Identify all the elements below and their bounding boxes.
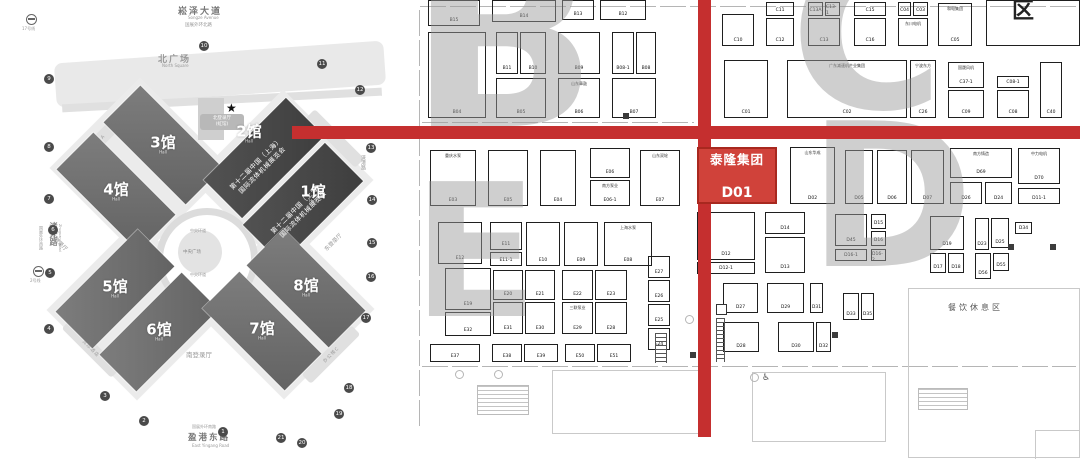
- dimension-line-bzone: [422, 122, 694, 123]
- booth-B10[interactable]: B10: [520, 32, 546, 74]
- booth-C40[interactable]: C40: [1040, 62, 1062, 118]
- pillar-marker: [690, 352, 696, 358]
- booth-B14[interactable]: B14: [492, 0, 556, 22]
- booth-D23[interactable]: D23: [975, 218, 989, 250]
- road-bottom-ring: 国展外环南路: [192, 424, 216, 430]
- booth-D14[interactable]: D14: [765, 212, 805, 234]
- hall-label-6馆: 6馆Hall: [146, 323, 171, 342]
- central-ring-label-top: 中央环道: [190, 228, 206, 234]
- booth-D70[interactable]: 中力电机D70: [1018, 148, 1060, 184]
- booth-E51[interactable]: E51: [597, 344, 631, 362]
- column-circle-1: [455, 370, 464, 379]
- booth-D26[interactable]: D26: [950, 182, 982, 204]
- booth-D33[interactable]: D33: [843, 293, 859, 320]
- booth-C15[interactable]: C15: [854, 2, 886, 16]
- gate-1: 1: [218, 427, 228, 437]
- gate-21: 21: [276, 433, 286, 443]
- central-plaza-label: 中央广场: [183, 249, 201, 255]
- booth-C16[interactable]: C16: [854, 18, 886, 46]
- booth-E09[interactable]: E09: [564, 222, 598, 266]
- booth-D19[interactable]: D19: [930, 216, 964, 250]
- booth-C02[interactable]: 广东减速机产业集团C02: [787, 60, 907, 118]
- booth-B08-1[interactable]: B08-1: [612, 32, 634, 74]
- booth-E26[interactable]: E26: [648, 280, 670, 302]
- booth-B13[interactable]: B13: [562, 0, 594, 20]
- column-circle-2: [494, 370, 503, 379]
- booth-B04[interactable]: B04: [428, 32, 486, 118]
- booth-C08-1[interactable]: C08-1: [997, 76, 1029, 88]
- booth-B12[interactable]: B12: [600, 0, 646, 20]
- booth-D28[interactable]: D28: [723, 322, 759, 352]
- booth-E12[interactable]: E12: [438, 222, 482, 264]
- gate-15: 15: [367, 238, 377, 248]
- booth-B05[interactable]: B05: [496, 78, 546, 118]
- hall-label-8馆: 8馆Hall: [293, 279, 318, 298]
- booth-D32[interactable]: D32: [816, 322, 831, 352]
- gate-10: 10: [199, 41, 209, 51]
- booth-D16[interactable]: D16: [871, 231, 886, 246]
- booth-C01[interactable]: C01: [724, 60, 768, 118]
- hall-label-2馆: 2馆Hall: [236, 125, 261, 144]
- column-circle-3: [685, 315, 694, 324]
- booth-E08[interactable]: 上海水泵E08: [604, 222, 652, 266]
- booth-E25[interactable]: E25: [648, 304, 670, 326]
- gate-4: 4: [44, 324, 54, 334]
- booth-D11-1[interactable]: D11-1: [1018, 188, 1060, 204]
- booth-E06[interactable]: E06: [590, 148, 630, 178]
- booth-D31[interactable]: D31: [810, 283, 823, 313]
- hall-label-3馆: 3馆Hall: [150, 136, 175, 155]
- booth-D15[interactable]: D15: [871, 214, 886, 229]
- booth-C11[interactable]: C11: [766, 2, 794, 16]
- booth-B15[interactable]: B15: [428, 0, 480, 26]
- gate-19: 19: [334, 409, 344, 419]
- booth-D35[interactable]: D35: [861, 293, 874, 320]
- booth-E19[interactable]: E19: [445, 268, 491, 310]
- booth-D05[interactable]: D05: [845, 150, 873, 204]
- pillar-marker: [1050, 244, 1056, 250]
- gate-18: 18: [344, 383, 354, 393]
- booth-D07[interactable]: D07: [911, 150, 944, 204]
- booth-E23[interactable]: E23: [595, 270, 627, 300]
- booth-E07[interactable]: 山东双轮E07: [640, 150, 680, 206]
- booth-D55[interactable]: D55: [993, 253, 1009, 271]
- entrance-outline-3: [1035, 430, 1080, 459]
- booth-D24[interactable]: D24: [985, 182, 1012, 204]
- venue-map-screenshot: 中央广场 中央环道 中央环道 办公楼A 洲际酒店 办公楼C 北登录厅 (虹馆) …: [0, 0, 1080, 459]
- booth-E32[interactable]: E32: [445, 312, 491, 336]
- booth-C09[interactable]: C09: [948, 90, 984, 118]
- booth-C13A[interactable]: C13A: [808, 2, 823, 16]
- left-overview-map: 中央广场 中央环道 中央环道 办公楼A 洲际酒店 办公楼C 北登录厅 (虹馆) …: [0, 0, 415, 459]
- booth-D17[interactable]: D17: [930, 253, 946, 273]
- booth-E03[interactable]: 重庆水泵E03: [430, 150, 476, 206]
- stairs-icon-2: [918, 388, 968, 410]
- stairs-icon-1: [477, 385, 529, 415]
- gate-2: 2: [139, 416, 149, 426]
- you-are-here-star: ★: [226, 102, 237, 114]
- road-left-ring: 国展外环西路: [38, 226, 44, 250]
- gate-13: 13: [366, 143, 376, 153]
- gate-6: 6: [48, 225, 58, 235]
- gate-3: 3: [100, 391, 110, 401]
- booth-E28[interactable]: E28: [595, 302, 627, 334]
- column-circle-4: [750, 373, 759, 382]
- entrance-outline-2: [752, 372, 886, 442]
- booth-E11[interactable]: E11: [490, 222, 522, 250]
- gate-14: 14: [367, 195, 377, 205]
- south-entrance-label: 南登录厅: [186, 349, 212, 359]
- booth-C13-1[interactable]: C13-1: [825, 2, 840, 16]
- booth-B11[interactable]: B11: [496, 32, 518, 74]
- gate-7: 7: [44, 194, 54, 204]
- booth-D06[interactable]: D06: [877, 150, 907, 204]
- booth-E11-1[interactable]: E11-1: [490, 252, 522, 266]
- booth-D02[interactable]: 山东华成D02: [790, 147, 835, 204]
- gate-20: 20: [297, 438, 307, 448]
- booth-D29[interactable]: D29: [767, 283, 804, 313]
- booth-E39[interactable]: E39: [524, 344, 558, 362]
- booth-E38[interactable]: E38: [492, 344, 522, 362]
- booth-E10[interactable]: E10: [526, 222, 560, 266]
- dimension-line-left: [419, 10, 420, 430]
- gate-9: 9: [44, 74, 54, 84]
- booth-D01[interactable]: 泰隆集团D01: [697, 147, 777, 204]
- booth-D56[interactable]: D56: [975, 253, 991, 279]
- booth-D34[interactable]: D34: [1015, 222, 1032, 234]
- metro-line17-label: 17号线: [22, 26, 35, 32]
- booth-D69[interactable]: 南方铸造D69: [950, 148, 1012, 178]
- booth-D16-1[interactable]: D16-1: [835, 249, 867, 261]
- escalator-icon-1: [655, 333, 667, 363]
- booth-D25[interactable]: D25: [991, 218, 1009, 248]
- road-top-en: Songze Avenue: [188, 15, 219, 20]
- booth-C10[interactable]: C10: [722, 14, 754, 46]
- rest-area-label: 餐饮休息区: [948, 302, 1003, 313]
- gate-5: 5: [45, 268, 55, 278]
- booth-B08[interactable]: B08: [636, 32, 656, 74]
- hall-label-7馆: 7馆Hall: [249, 322, 274, 341]
- gate-17: 17: [361, 313, 371, 323]
- booth-D45[interactable]: D45: [835, 214, 867, 246]
- pillar-marker: [1008, 244, 1014, 250]
- gate-12: 12: [355, 85, 365, 95]
- booth-B07[interactable]: B07: [612, 78, 656, 118]
- hall-label-4馆: 4馆Hall: [103, 183, 128, 202]
- booth-E30[interactable]: E30: [525, 302, 555, 334]
- booth-D27[interactable]: D27: [723, 283, 758, 313]
- locator-line-vertical: [698, 0, 711, 437]
- zone-corner-label: 区: [1012, 1, 1034, 23]
- booth-E04[interactable]: E04: [540, 150, 576, 206]
- hall-label-5馆: 5馆Hall: [102, 280, 127, 299]
- booth-E31[interactable]: E31: [493, 302, 523, 334]
- booth-C04[interactable]: C04: [898, 2, 911, 16]
- booth-E37[interactable]: E37: [430, 344, 480, 362]
- entrance-outline-1: [552, 370, 704, 434]
- metro-line17-icon: [26, 14, 37, 25]
- gate-16: 16: [366, 272, 376, 282]
- road-bottom-en: East Yingang Road: [192, 443, 229, 448]
- gate-8: 8: [44, 142, 54, 152]
- pillar-marker: [832, 332, 838, 338]
- booth-D30[interactable]: D30: [778, 322, 814, 352]
- booth-E22[interactable]: E22: [562, 270, 593, 300]
- booth-E06-1[interactable]: 南方泵业E06-1: [590, 180, 630, 206]
- booth-C08[interactable]: C08: [997, 90, 1029, 118]
- booth-B06[interactable]: 山东章鼓B06: [558, 78, 600, 118]
- booth-C03[interactable]: C03: [913, 2, 928, 16]
- booth-C26[interactable]: 宁波东方C26: [910, 60, 936, 118]
- column-marker-icon: [716, 304, 727, 315]
- escalator-icon-2: [716, 318, 725, 362]
- booth-E27[interactable]: E27: [648, 256, 670, 278]
- booth-C37-1[interactable]: 国晟风机C37-1: [948, 62, 984, 88]
- booth-E29[interactable]: 三联泵业E29: [562, 302, 593, 334]
- booth-D16-2[interactable]: D16-2: [871, 249, 886, 261]
- booth-E21[interactable]: E21: [525, 270, 555, 300]
- booth-unlabeled[interactable]: 东川电机: [898, 18, 928, 46]
- booth-D18[interactable]: D18: [948, 253, 964, 273]
- metro-line2-label: 2号线: [30, 278, 41, 284]
- booth-B09[interactable]: B09: [558, 32, 600, 74]
- north-square-en: North Square: [162, 63, 189, 68]
- booth-E20[interactable]: E20: [493, 270, 523, 300]
- gate-11: 11: [317, 59, 327, 69]
- booth-C12[interactable]: C12: [766, 18, 794, 46]
- road-right: 涞港路: [360, 155, 367, 170]
- locator-line-horizontal: [292, 126, 1080, 139]
- booth-C05[interactable]: 和电集团C05: [938, 3, 972, 46]
- booth-D13[interactable]: D13: [765, 237, 805, 273]
- booth-E50[interactable]: E50: [565, 344, 595, 362]
- pillar-marker: [623, 113, 629, 119]
- metro-line2-icon: [33, 266, 44, 277]
- central-ring-label-bottom: 中央环道: [190, 272, 206, 278]
- booth-C13[interactable]: C13: [808, 18, 840, 46]
- road-left-en: Zhuguang Road: [58, 224, 62, 252]
- road-top-ring: 国展外环北路: [185, 22, 212, 28]
- wheelchair-icon: ♿: [762, 374, 770, 383]
- booth-E05[interactable]: E05: [488, 150, 528, 206]
